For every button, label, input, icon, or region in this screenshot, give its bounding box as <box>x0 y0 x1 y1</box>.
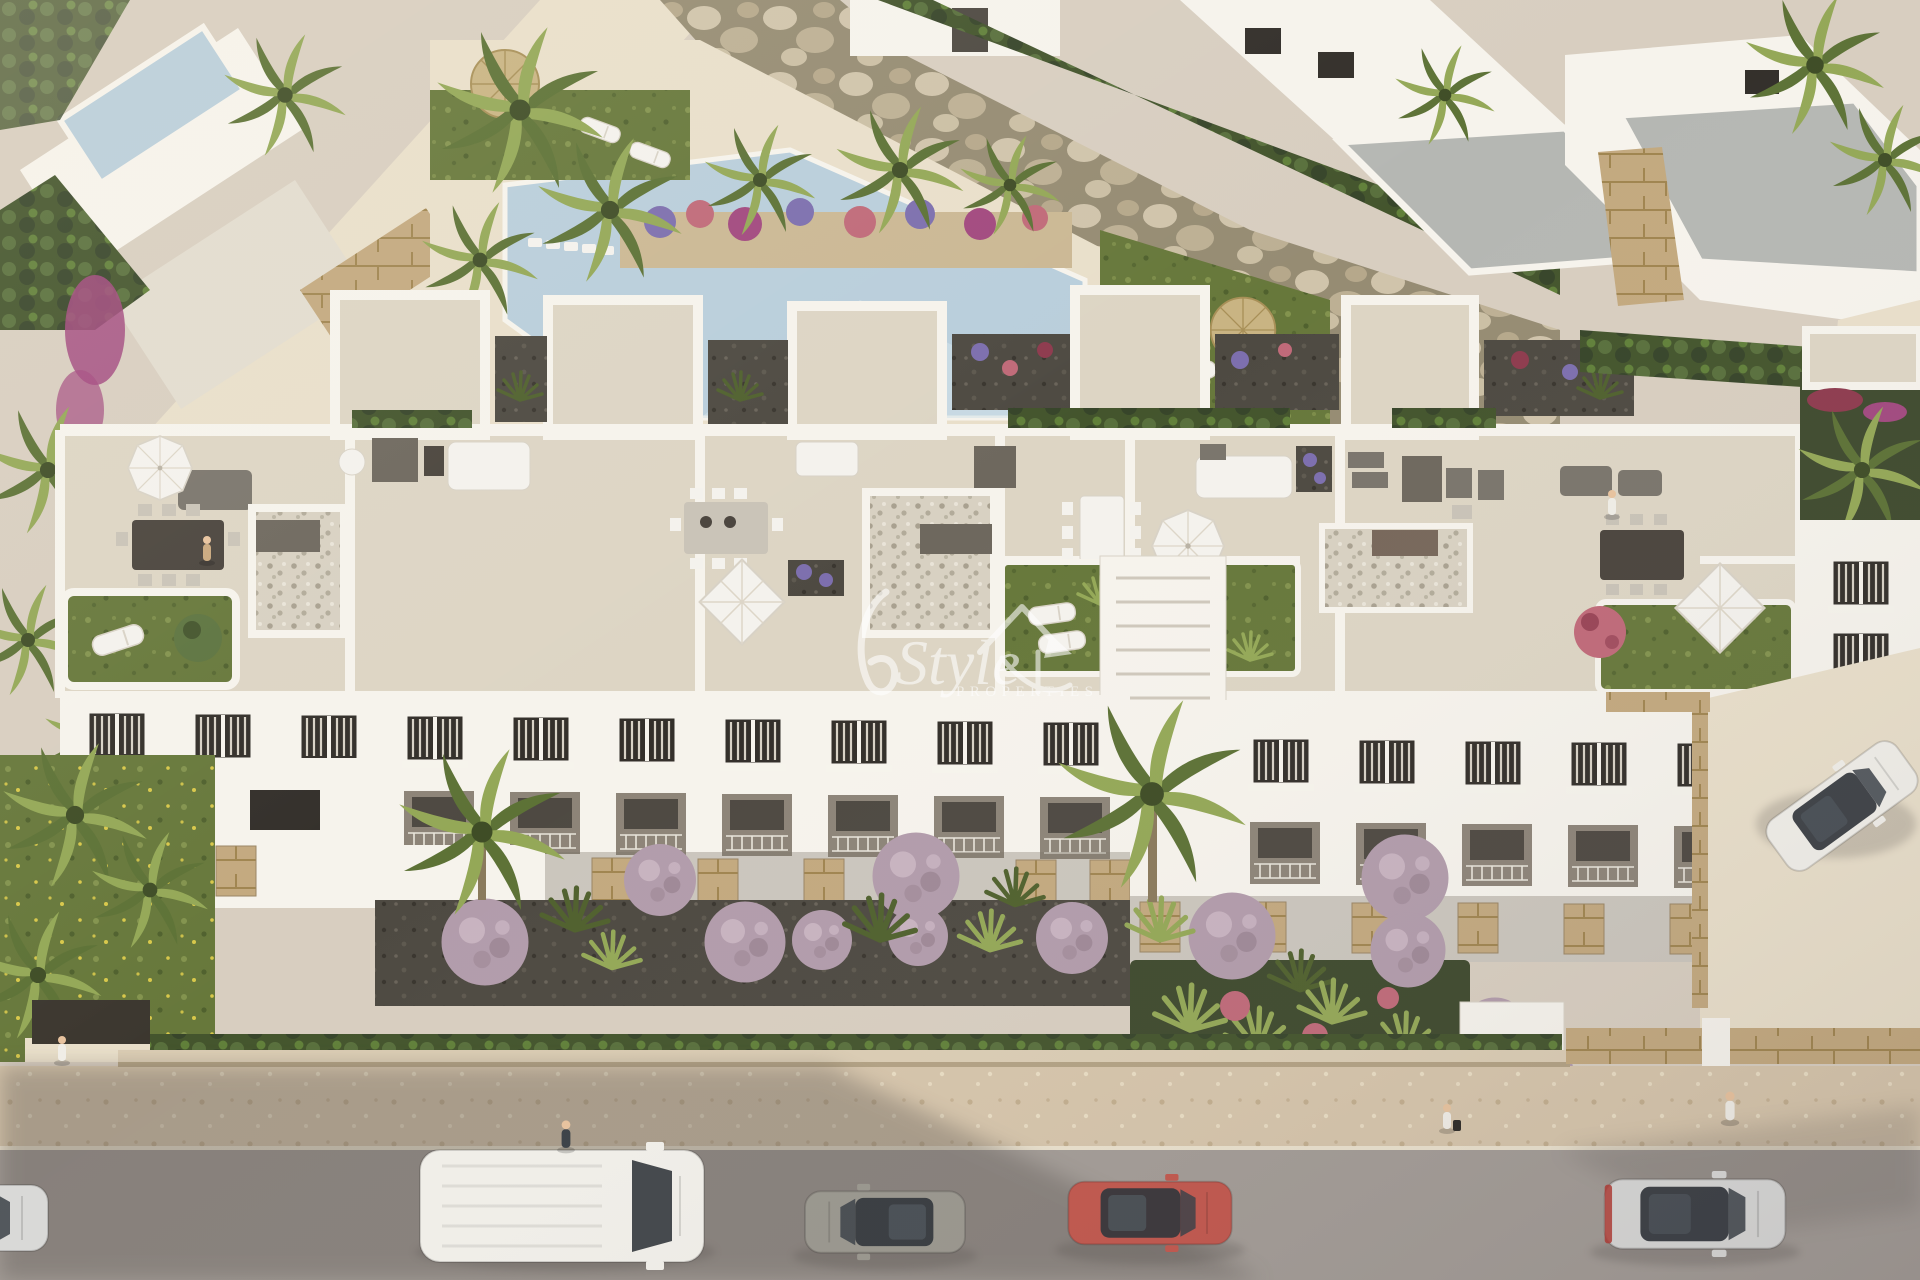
mauve-shrub <box>624 844 696 916</box>
stone-street-wall <box>1566 1028 1920 1064</box>
sun-lounger-grey <box>1352 472 1388 488</box>
storage-unit <box>372 438 418 482</box>
balcony <box>1462 824 1532 886</box>
storage-unit <box>1402 456 1442 502</box>
tower-terrace <box>548 300 698 435</box>
window <box>1248 738 1314 791</box>
storage-unit <box>256 520 320 552</box>
flower-bed <box>1807 388 1863 412</box>
window <box>826 719 892 772</box>
planter-box <box>1296 446 1332 492</box>
stone-retaining-wall <box>1692 706 1708 1008</box>
coffee-table <box>1200 444 1226 460</box>
gate-pillar <box>1702 1018 1730 1066</box>
tail-lights <box>1605 1185 1612 1244</box>
partial-silver-car <box>0 1177 48 1259</box>
storage-unit <box>974 446 1016 488</box>
storage-unit <box>920 524 992 554</box>
armchair <box>1446 468 1472 498</box>
window <box>932 720 998 773</box>
aerial-render-svg: Style PROPERTIES <box>0 0 1920 1280</box>
neighbour-terrace <box>1806 330 1920 386</box>
dining-table <box>1080 496 1124 562</box>
window <box>402 715 468 768</box>
watermark-brand-sub: PROPERTIES <box>956 684 1098 700</box>
shrub <box>174 614 222 662</box>
silver-sedan <box>1605 1171 1786 1257</box>
stone-pillar <box>1458 903 1498 953</box>
mauve-shrub <box>792 910 852 970</box>
table-bowl <box>724 516 736 528</box>
outdoor-sofa <box>1196 456 1292 498</box>
storage-unit <box>1372 530 1438 556</box>
flower-bed <box>1863 402 1907 422</box>
white-parasol <box>128 436 192 500</box>
sun-lounger-grey <box>1348 452 1384 468</box>
mauve-shrub <box>1362 835 1449 922</box>
outdoor-sofa <box>1618 470 1662 496</box>
garage-opening <box>32 1000 150 1044</box>
table-bowl <box>700 516 712 528</box>
outdoor-sofa <box>796 442 858 476</box>
gravel-courtyard <box>866 492 994 634</box>
window <box>1245 28 1281 54</box>
mauve-shrub <box>1036 902 1108 974</box>
stone-wall <box>1606 692 1710 712</box>
window <box>1828 560 1894 613</box>
grey-hatchback <box>805 1184 965 1260</box>
parapet-planter-hedge <box>1008 408 1290 428</box>
armchair <box>1478 470 1504 500</box>
aerial-property-render: Style PROPERTIES <box>0 0 1920 1280</box>
shrub-shade <box>183 621 201 639</box>
balcony <box>1568 825 1638 887</box>
pink-flower-bush <box>1574 606 1626 658</box>
side-table <box>1452 505 1472 519</box>
mauve-shrub <box>1371 913 1446 988</box>
mauve-shrub <box>442 899 529 986</box>
parapet-planter-hedge <box>352 410 472 428</box>
planter-box <box>424 446 444 476</box>
window <box>1566 741 1632 794</box>
window <box>614 717 680 770</box>
stone-pillar <box>1564 904 1604 954</box>
tower-terrace <box>792 306 942 435</box>
round-table <box>339 449 365 475</box>
dining-table <box>684 502 768 554</box>
white-van <box>420 1142 704 1270</box>
window <box>720 718 786 771</box>
outdoor-sofa <box>1560 466 1612 496</box>
balcony <box>1250 822 1320 884</box>
dining-table <box>1600 530 1684 580</box>
outdoor-sofa <box>448 442 530 490</box>
window <box>1318 52 1354 78</box>
parapet-planter-hedge <box>1392 408 1496 428</box>
planter-box <box>788 560 844 596</box>
window <box>508 716 574 769</box>
window <box>1354 739 1420 792</box>
window <box>1460 740 1526 793</box>
red-hatchback <box>1068 1174 1231 1252</box>
mauve-shrub <box>705 902 786 983</box>
bougainvillea <box>65 275 125 385</box>
balcony <box>722 794 792 856</box>
window <box>1038 721 1104 774</box>
mauve-shrub <box>1189 893 1276 980</box>
